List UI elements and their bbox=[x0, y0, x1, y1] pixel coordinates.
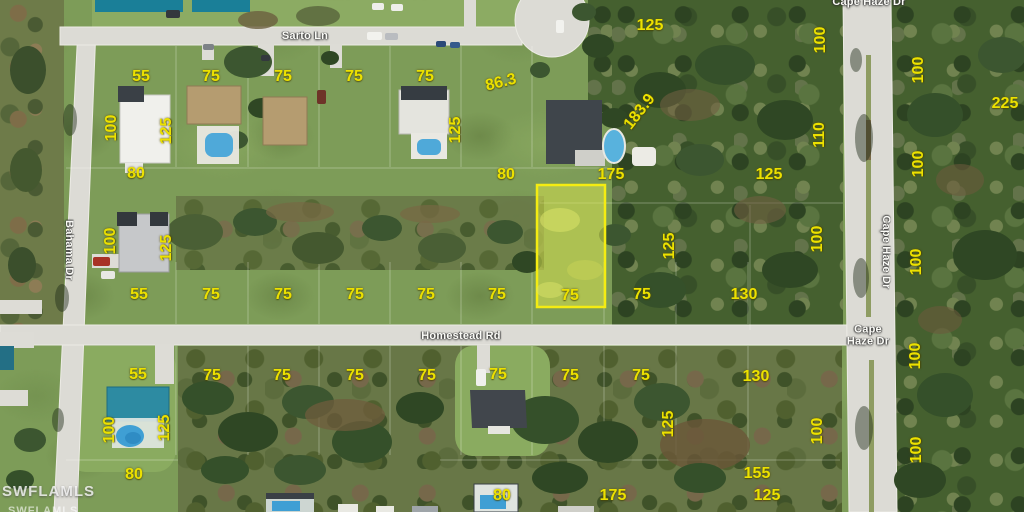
lot-dimension-label: 75 bbox=[561, 288, 579, 304]
lot-dimension-label: 100 bbox=[908, 343, 924, 370]
lot-dimension-label: 55 bbox=[130, 287, 148, 303]
annotation-layer: 557575757586.3183.9125751257581001258012… bbox=[0, 0, 1024, 512]
lot-dimension-label: 80 bbox=[497, 167, 515, 183]
lot-dimension-label: 75 bbox=[202, 69, 220, 85]
lot-dimension-label: 100 bbox=[810, 226, 826, 253]
lot-dimension-label: 155 bbox=[744, 466, 771, 482]
street-name-label: Cape Haze Dr bbox=[842, 324, 894, 347]
lot-dimension-label: 75 bbox=[242, 0, 260, 1]
lot-dimension-label: 225 bbox=[992, 96, 1019, 112]
lot-dimension-label: 125 bbox=[159, 235, 175, 262]
lot-dimension-label: 75 bbox=[411, 0, 429, 2]
lot-dimension-label: 55 bbox=[132, 69, 150, 85]
lot-dimension-label: 75 bbox=[489, 367, 507, 383]
lot-dimension-label: 125 bbox=[159, 118, 175, 145]
street-name-label: Sarto Ln bbox=[282, 31, 328, 43]
lot-dimension-label: 130 bbox=[743, 369, 770, 385]
lot-dimension-label: 100 bbox=[911, 57, 927, 84]
lot-dimension-label: 100 bbox=[911, 151, 927, 178]
lot-dimension-label: 75 bbox=[418, 368, 436, 384]
lot-dimension-label: 100 bbox=[810, 418, 826, 445]
lot-dimension-label: 55 bbox=[129, 367, 147, 383]
lot-dimension-label: 75 bbox=[202, 287, 220, 303]
lot-dimension-label: 100 bbox=[813, 27, 829, 54]
lot-dimension-label: 100 bbox=[102, 417, 118, 444]
aerial-map: 557575757586.3183.9125751257581001258012… bbox=[0, 0, 1024, 512]
lot-dimension-label: 75 bbox=[346, 287, 364, 303]
lot-dimension-label: 75 bbox=[416, 69, 434, 85]
lot-dimension-label: 75 bbox=[633, 287, 651, 303]
lot-dimension-label: 125 bbox=[637, 18, 664, 34]
lot-dimension-label: 110 bbox=[812, 122, 828, 148]
lot-dimension-label: 75 bbox=[632, 368, 650, 384]
lot-dimension-label: 100 bbox=[909, 437, 925, 464]
street-name-label: Homestead Rd bbox=[421, 331, 500, 343]
lot-dimension-label: 125 bbox=[326, 0, 353, 2]
street-name-label: Bahama Dr bbox=[62, 220, 74, 280]
lot-dimension-label: 75 bbox=[345, 69, 363, 85]
lot-dimension-label: 175 bbox=[600, 488, 627, 504]
lot-dimension-label: 86.3 bbox=[484, 71, 518, 94]
lot-dimension-label: 125 bbox=[661, 411, 677, 438]
lot-dimension-label: 80 bbox=[125, 467, 143, 483]
lot-dimension-label: 75 bbox=[488, 287, 506, 303]
lot-dimension-label: 8 bbox=[489, 0, 498, 1]
lot-dimension-label: 75 bbox=[274, 287, 292, 303]
lot-dimension-label: 175 bbox=[598, 167, 625, 183]
lot-dimension-label: 80 bbox=[127, 166, 145, 182]
mls-watermark-partial: SWFLAMLS bbox=[8, 505, 78, 512]
lot-dimension-label: 100 bbox=[909, 249, 925, 276]
lot-dimension-label: 125 bbox=[662, 233, 678, 260]
lot-dimension-label: 75 bbox=[417, 287, 435, 303]
lot-dimension-label: 100 bbox=[104, 115, 120, 142]
lot-dimension-label: 125 bbox=[448, 117, 464, 144]
lot-dimension-label: 125 bbox=[157, 415, 173, 442]
lot-dimension-label: 75 bbox=[273, 368, 291, 384]
lot-dimension-label: 75 bbox=[274, 69, 292, 85]
lot-dimension-label: 100 bbox=[103, 228, 119, 255]
lot-dimension-label: 75 bbox=[561, 368, 579, 384]
lot-dimension-label: 125 bbox=[754, 488, 781, 504]
street-name-label: Cape Haze Dr bbox=[879, 215, 891, 288]
lot-dimension-label: 75 bbox=[346, 368, 364, 384]
lot-dimension-label: 80 bbox=[493, 488, 511, 504]
lot-dimension-label: 183.9 bbox=[621, 91, 658, 132]
lot-dimension-label: 130 bbox=[731, 287, 758, 303]
lot-dimension-label: 75 bbox=[203, 368, 221, 384]
street-name-label: Cape Haze Dr bbox=[832, 0, 905, 9]
mls-watermark: SWFLAMLS bbox=[2, 483, 95, 500]
lot-dimension-label: 125 bbox=[756, 167, 783, 183]
